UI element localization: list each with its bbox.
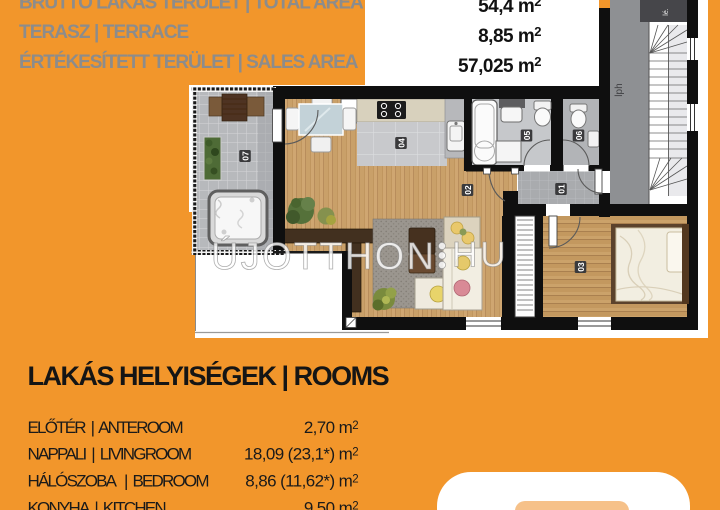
- svg-text:06: 06: [574, 131, 584, 141]
- svg-text:57,025 m2: 57,025 m2: [458, 54, 541, 77]
- svg-text:07: 07: [241, 151, 251, 161]
- svg-text:03: 03: [576, 262, 586, 272]
- svg-text:HÁLÓSZOBA | BEDROOM: HÁLÓSZOBA | BEDROOM: [28, 472, 209, 491]
- svg-text:ÚJOTTHON: ÚJOTTHON: [211, 235, 436, 278]
- svg-text:8,86 (11,62*) m2: 8,86 (11,62*) m2: [245, 472, 358, 491]
- svg-text:ÉRTÉKESÍTETT TERÜLET | SALES A: ÉRTÉKESÍTETT TERÜLET | SALES AREA: [19, 51, 359, 73]
- svg-text:KONYHA | KITCHEN: KONYHA | KITCHEN: [28, 499, 166, 510]
- svg-text:lph: lph: [614, 83, 625, 96]
- svg-text:LAKÁS HELYISÉGEK | ROOMS: LAKÁS HELYISÉGEK | ROOMS: [28, 360, 389, 391]
- svg-text:05: 05: [522, 131, 532, 141]
- svg-text:02: 02: [463, 185, 473, 195]
- svg-text:TERASZ | TERRACE: TERASZ | TERRACE: [19, 22, 189, 43]
- svg-text:18,09 (23,1*) m2: 18,09 (23,1*) m2: [244, 445, 358, 464]
- svg-text:HU: HU: [452, 236, 509, 275]
- svg-text:BRUTTÓ LAKÁS TERÜLET | TOTAL A: BRUTTÓ LAKÁS TERÜLET | TOTAL AREA: [19, 0, 364, 14]
- svg-text:ELŐTÉR | ANTEROOM: ELŐTÉR | ANTEROOM: [28, 418, 183, 437]
- svg-text:9,50 m2: 9,50 m2: [304, 499, 358, 510]
- svg-text:01: 01: [557, 184, 567, 194]
- svg-text:54,4 m2: 54,4 m2: [478, 0, 541, 17]
- svg-text:2,70 m2: 2,70 m2: [304, 418, 358, 437]
- svg-text:04: 04: [397, 138, 407, 148]
- svg-text:lé.: lé.: [663, 8, 670, 15]
- svg-text:8,85 m2: 8,85 m2: [478, 24, 541, 47]
- svg-text:NAPPALI | LIVINGROOM: NAPPALI | LIVINGROOM: [28, 445, 192, 464]
